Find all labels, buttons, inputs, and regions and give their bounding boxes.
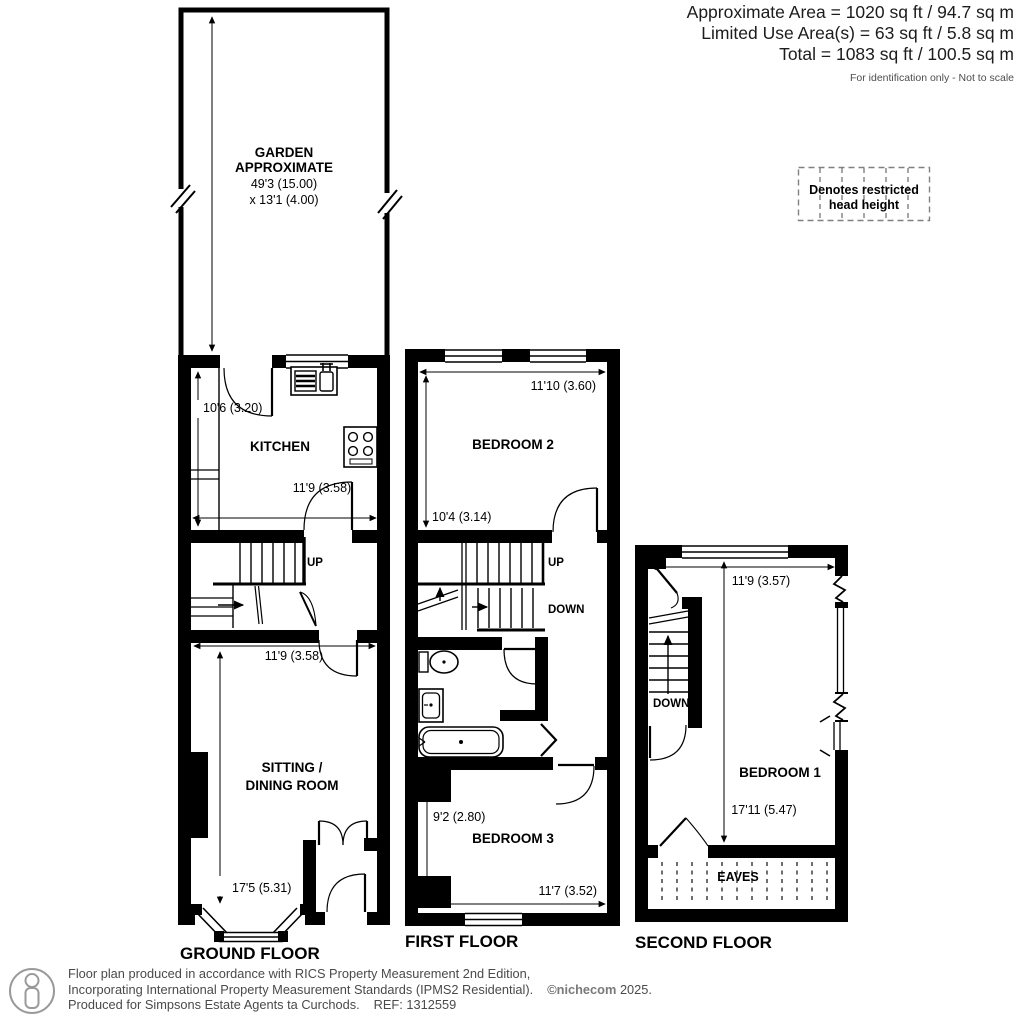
first-floor-plan: 11'10 (3.60) BEDROOM 2 10'4 (3.14) bbox=[405, 348, 620, 927]
basin-icon bbox=[419, 689, 443, 722]
copyright-brand: nichecom bbox=[557, 982, 617, 997]
sitting-width-dim: 11'9 (3.58) bbox=[265, 649, 323, 663]
bedroom3-label: BEDROOM 3 bbox=[472, 831, 554, 846]
floorplan-page: GARDEN APPROXIMATE 49'3 (15.00) x 13'1 (… bbox=[0, 0, 1024, 1018]
kitchen-depth-dim: 10'6 (3.20) bbox=[203, 401, 262, 415]
ground-up-label: UP bbox=[307, 557, 323, 569]
garden-dim-1: 49'3 (15.00) bbox=[251, 177, 317, 191]
ground-floor-label: GROUND FLOOR bbox=[180, 944, 320, 963]
identification-note: For identification only - Not to scale bbox=[687, 68, 1014, 89]
sitting-depth-dim: 17'5 (5.31) bbox=[232, 881, 291, 895]
bedroom3-window bbox=[465, 912, 522, 927]
footer-line-1: Floor plan produced in accordance with R… bbox=[68, 966, 652, 982]
copyright-year: 2025. bbox=[620, 982, 652, 997]
nichecom-logo-icon bbox=[8, 966, 58, 1016]
floor-plan-drawing: GARDEN APPROXIMATE 49'3 (15.00) x 13'1 (… bbox=[0, 0, 1024, 1018]
footer: Floor plan produced in accordance with R… bbox=[8, 966, 652, 1016]
bedroom3-depth-dim: 9'2 (2.80) bbox=[433, 810, 485, 824]
toilet-icon bbox=[419, 651, 458, 673]
garden-area: GARDEN APPROXIMATE 49'3 (15.00) x 13'1 (… bbox=[171, 10, 402, 360]
footer-line-2: Incorporating International Property Mea… bbox=[68, 982, 652, 998]
bedroom2-depth-dim: 10'4 (3.14) bbox=[432, 510, 491, 524]
bedroom1-window-top bbox=[682, 544, 788, 559]
bedroom2-label: BEDROOM 2 bbox=[472, 437, 554, 452]
first-up-label: UP bbox=[548, 557, 564, 569]
second-floor-plan: 11'9 (3.57) DOWN bbox=[641, 544, 850, 916]
bedroom1-label: BEDROOM 1 bbox=[739, 765, 821, 780]
restricted-height-legend: Denotes restricted head height bbox=[799, 168, 930, 221]
sitting-room-label-1: SITTING / bbox=[262, 760, 323, 775]
sitting-room-label-2: DINING ROOM bbox=[246, 778, 339, 793]
eaves-label: EAVES bbox=[717, 870, 758, 884]
bedroom3-chimney-lower bbox=[415, 876, 451, 908]
second-down-label: DOWN bbox=[653, 698, 689, 710]
total-area: Total = 1083 sq ft / 100.5 sq m bbox=[687, 44, 1014, 65]
legend-text-2: head height bbox=[829, 198, 900, 212]
footer-line-3: Produced for Simpsons Estate Agents ta C… bbox=[68, 997, 652, 1013]
copyright-symbol: © bbox=[547, 982, 556, 997]
reference-number: REF: 1312559 bbox=[374, 997, 457, 1012]
limited-use-area: Limited Use Area(s) = 63 sq ft / 5.8 sq … bbox=[687, 23, 1014, 44]
kitchen-sink-icon bbox=[291, 363, 337, 395]
bedroom2-width-dim: 11'10 (3.60) bbox=[531, 379, 596, 393]
bathtub-icon bbox=[419, 727, 503, 757]
chimney-breast bbox=[191, 752, 208, 838]
area-summary: Approximate Area = 1020 sq ft / 94.7 sq … bbox=[687, 2, 1014, 89]
first-down-label: DOWN bbox=[548, 604, 584, 616]
approximate-area: Approximate Area = 1020 sq ft / 94.7 sq … bbox=[687, 2, 1014, 23]
garden-label-2: APPROXIMATE bbox=[235, 160, 333, 175]
first-floor-label: FIRST FLOOR bbox=[405, 932, 518, 951]
ground-floor-plan: 10'6 (3.20) KITCHEN 11'9 (3.58) bbox=[185, 354, 384, 942]
bedroom3-width-dim: 11'7 (3.52) bbox=[539, 884, 597, 898]
second-floor-label: SECOND FLOOR bbox=[635, 933, 772, 952]
garden-dim-2: x 13'1 (4.00) bbox=[249, 193, 318, 207]
kitchen-label: KITCHEN bbox=[250, 439, 310, 454]
second-width-dim: 11'9 (3.57) bbox=[732, 574, 790, 588]
hob-icon bbox=[344, 427, 377, 467]
garden-label-1: GARDEN bbox=[255, 145, 314, 160]
footer-text: Floor plan produced in accordance with R… bbox=[68, 966, 652, 1013]
legend-text-1: Denotes restricted bbox=[809, 183, 919, 197]
bedroom3-chimney-upper bbox=[415, 770, 451, 802]
bedroom1-depth-dim: 17'11 (5.47) bbox=[731, 803, 796, 817]
